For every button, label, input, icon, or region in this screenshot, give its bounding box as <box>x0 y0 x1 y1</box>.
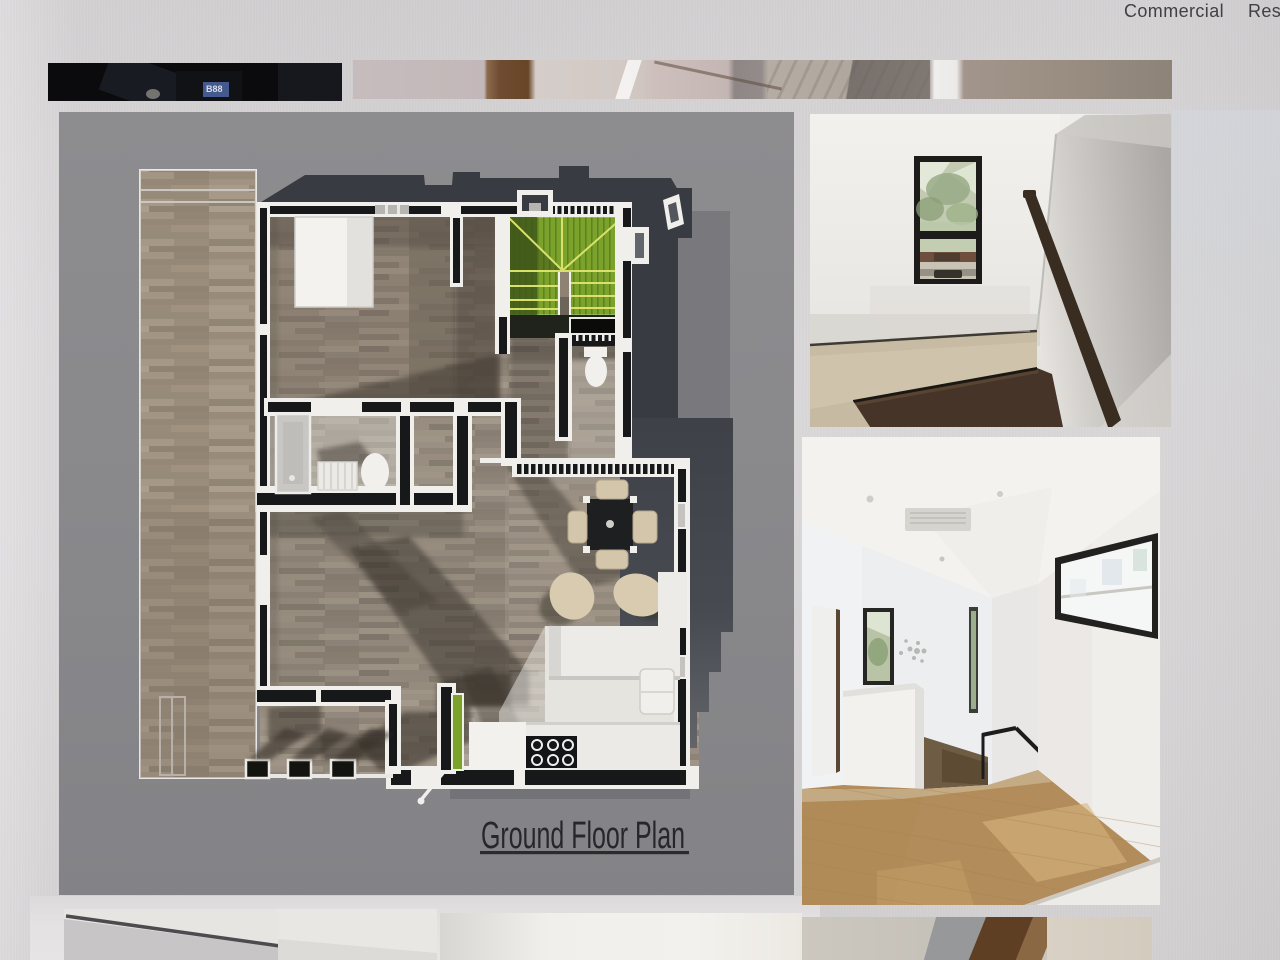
svg-text:Ground Floor Plan: Ground Floor Plan <box>481 815 685 857</box>
